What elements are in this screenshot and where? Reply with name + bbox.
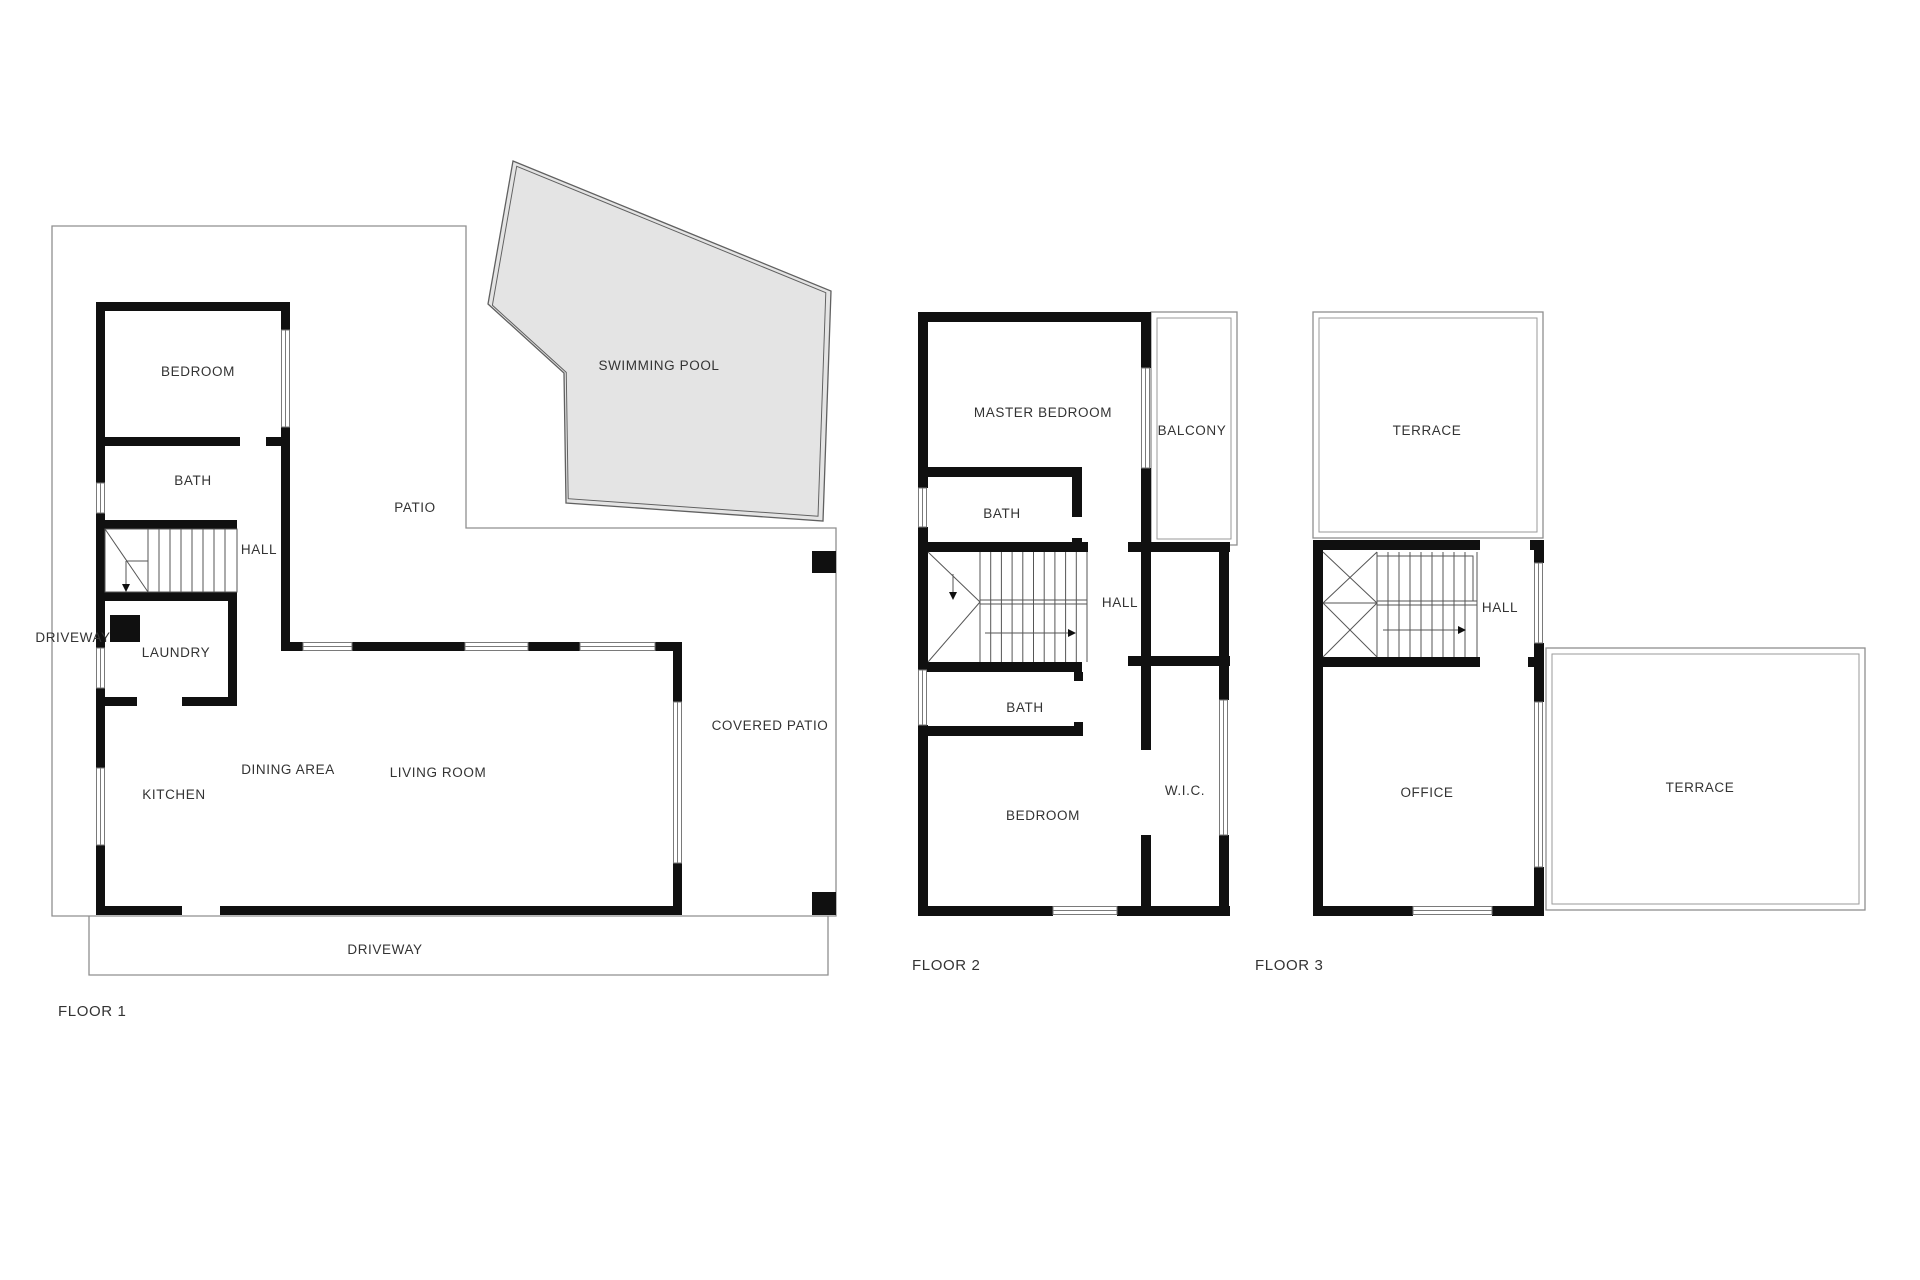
room-label-covered-patio: COVERED PATIO: [712, 718, 829, 733]
room-label-office: OFFICE: [1400, 785, 1453, 800]
floor3-walls: [1313, 540, 1544, 916]
room-label-driveway-side: DRIVEWAY: [35, 630, 110, 645]
room-label-patio: PATIO: [394, 500, 436, 515]
room-label-bedroom: BEDROOM: [161, 364, 235, 379]
patio-column-top: [812, 551, 836, 573]
floor1-plan: BEDROOM BATH HALL DRIVEWAY LAUNDRY KITCH…: [35, 161, 836, 1020]
floorplan-drawing: BEDROOM BATH HALL DRIVEWAY LAUNDRY KITCH…: [0, 0, 1920, 1280]
laundry-appliance: [110, 615, 140, 642]
floor2-stairs: [928, 552, 1087, 662]
floor1-stairs: [105, 529, 237, 592]
floor3-terrace-right-boundary: [1546, 648, 1865, 910]
room-label-hall: HALL: [1102, 595, 1138, 610]
room-label-laundry: LAUNDRY: [142, 645, 210, 660]
stairs-right-arrow: [1068, 629, 1076, 637]
room-label-dining-area: DINING AREA: [241, 762, 335, 777]
patio-column-bottom: [812, 892, 836, 915]
room-label-balcony: BALCONY: [1158, 423, 1227, 438]
room-label-bath-lower: BATH: [1006, 700, 1043, 715]
floor2-walls: [918, 312, 1230, 916]
room-label-terrace-top: TERRACE: [1393, 423, 1462, 438]
room-label-terrace-right: TERRACE: [1666, 780, 1735, 795]
floorplan-canvas: BEDROOM BATH HALL DRIVEWAY LAUNDRY KITCH…: [0, 0, 1920, 1280]
floor3-labels: TERRACE HALL OFFICE TERRACE FLOOR 3: [1255, 423, 1734, 974]
room-label-swimming-pool: SWIMMING POOL: [598, 358, 719, 373]
floor2-windows: [919, 368, 1228, 915]
floor3-plan: TERRACE HALL OFFICE TERRACE FLOOR 3: [1255, 312, 1865, 974]
stairs-down-arrow: [949, 592, 957, 600]
room-label-bath-upper: BATH: [983, 506, 1020, 521]
room-label-living-room: LIVING ROOM: [390, 765, 487, 780]
stairs-down-arrow: [122, 584, 130, 592]
floor3-stairs: [1323, 552, 1477, 657]
room-label-driveway-bottom: DRIVEWAY: [347, 942, 422, 957]
floor1-driveway-boundary: [89, 916, 828, 975]
room-label-wic: W.I.C.: [1165, 783, 1205, 798]
room-label-bath: BATH: [174, 473, 211, 488]
room-label-hall: HALL: [241, 542, 277, 557]
floor2-plan: MASTER BEDROOM BALCONY BATH HALL BATH BE…: [912, 312, 1237, 974]
room-label-master-bedroom: MASTER BEDROOM: [974, 405, 1112, 420]
floor3-title: FLOOR 3: [1255, 957, 1323, 974]
swimming-pool-shape: [488, 161, 831, 521]
floor1-title: FLOOR 1: [58, 1003, 126, 1020]
floor2-labels: MASTER BEDROOM BALCONY BATH HALL BATH BE…: [912, 405, 1226, 974]
room-label-kitchen: KITCHEN: [142, 787, 205, 802]
room-label-bedroom: BEDROOM: [1006, 808, 1080, 823]
floor2-title: FLOOR 2: [912, 957, 980, 974]
room-label-hall: HALL: [1482, 600, 1518, 615]
